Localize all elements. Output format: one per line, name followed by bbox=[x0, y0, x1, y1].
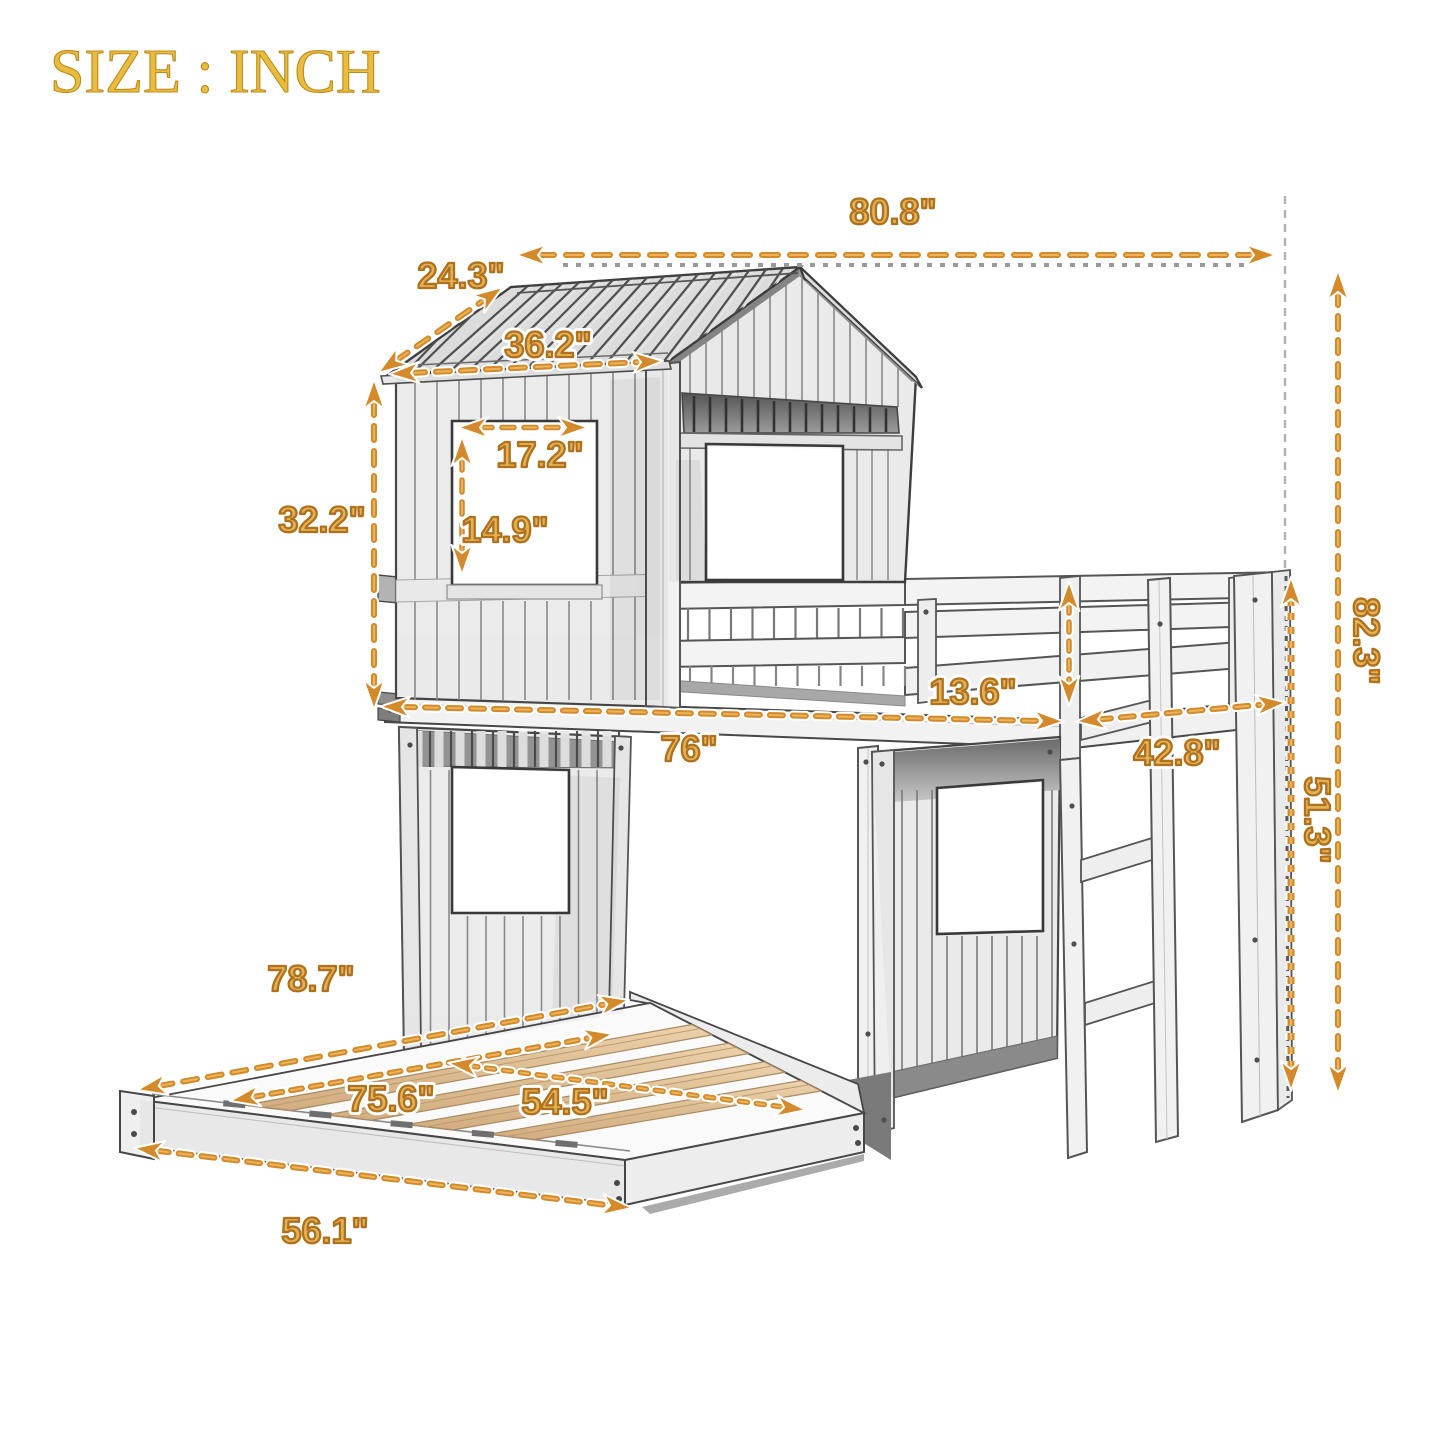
svg-text:36.2": 36.2" bbox=[504, 324, 591, 365]
svg-text:78.7": 78.7" bbox=[267, 958, 354, 999]
svg-text:17.2": 17.2" bbox=[496, 434, 583, 475]
svg-text:32.2": 32.2" bbox=[278, 499, 365, 540]
svg-text:75.6": 75.6" bbox=[347, 1078, 434, 1119]
svg-text:SIZE : INCH: SIZE : INCH bbox=[50, 38, 381, 106]
svg-text:76": 76" bbox=[660, 728, 717, 769]
svg-text:80.8": 80.8" bbox=[849, 191, 936, 232]
svg-text:51.3": 51.3" bbox=[1297, 776, 1338, 863]
svg-text:24.3": 24.3" bbox=[417, 255, 504, 296]
svg-text:82.3": 82.3" bbox=[1346, 597, 1387, 684]
svg-text:42.8": 42.8" bbox=[1133, 732, 1220, 773]
svg-text:13.6": 13.6" bbox=[929, 671, 1016, 712]
svg-text:54.5": 54.5" bbox=[521, 1081, 608, 1122]
svg-text:14.9": 14.9" bbox=[461, 509, 548, 550]
svg-text:56.1": 56.1" bbox=[281, 1210, 368, 1251]
